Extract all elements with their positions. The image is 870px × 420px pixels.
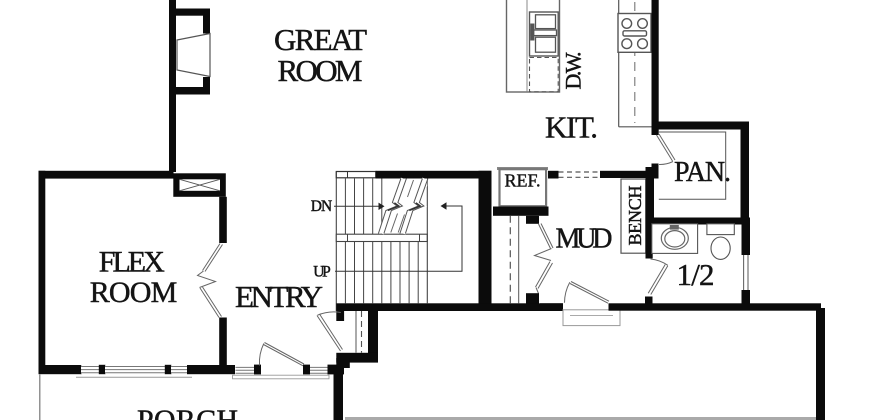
svg-text:1/2: 1/2 — [677, 257, 715, 292]
svg-text:DN: DN — [311, 198, 333, 215]
svg-text:PORCH: PORCH — [137, 404, 238, 420]
svg-text:ROOM: ROOM — [90, 276, 178, 309]
svg-text:D.W.: D.W. — [561, 52, 586, 90]
svg-text:MUD: MUD — [556, 224, 613, 255]
svg-text:GREAT: GREAT — [274, 22, 367, 57]
svg-text:ROOM: ROOM — [278, 53, 363, 88]
svg-text:REF.: REF. — [505, 171, 541, 191]
svg-text:ENTRY: ENTRY — [235, 279, 323, 314]
svg-text:KIT.: KIT. — [545, 110, 598, 145]
svg-text:BENCH: BENCH — [625, 186, 645, 246]
svg-text:PAN.: PAN. — [674, 157, 731, 188]
svg-text:UP: UP — [313, 264, 331, 281]
svg-text:FLEX: FLEX — [99, 246, 165, 279]
